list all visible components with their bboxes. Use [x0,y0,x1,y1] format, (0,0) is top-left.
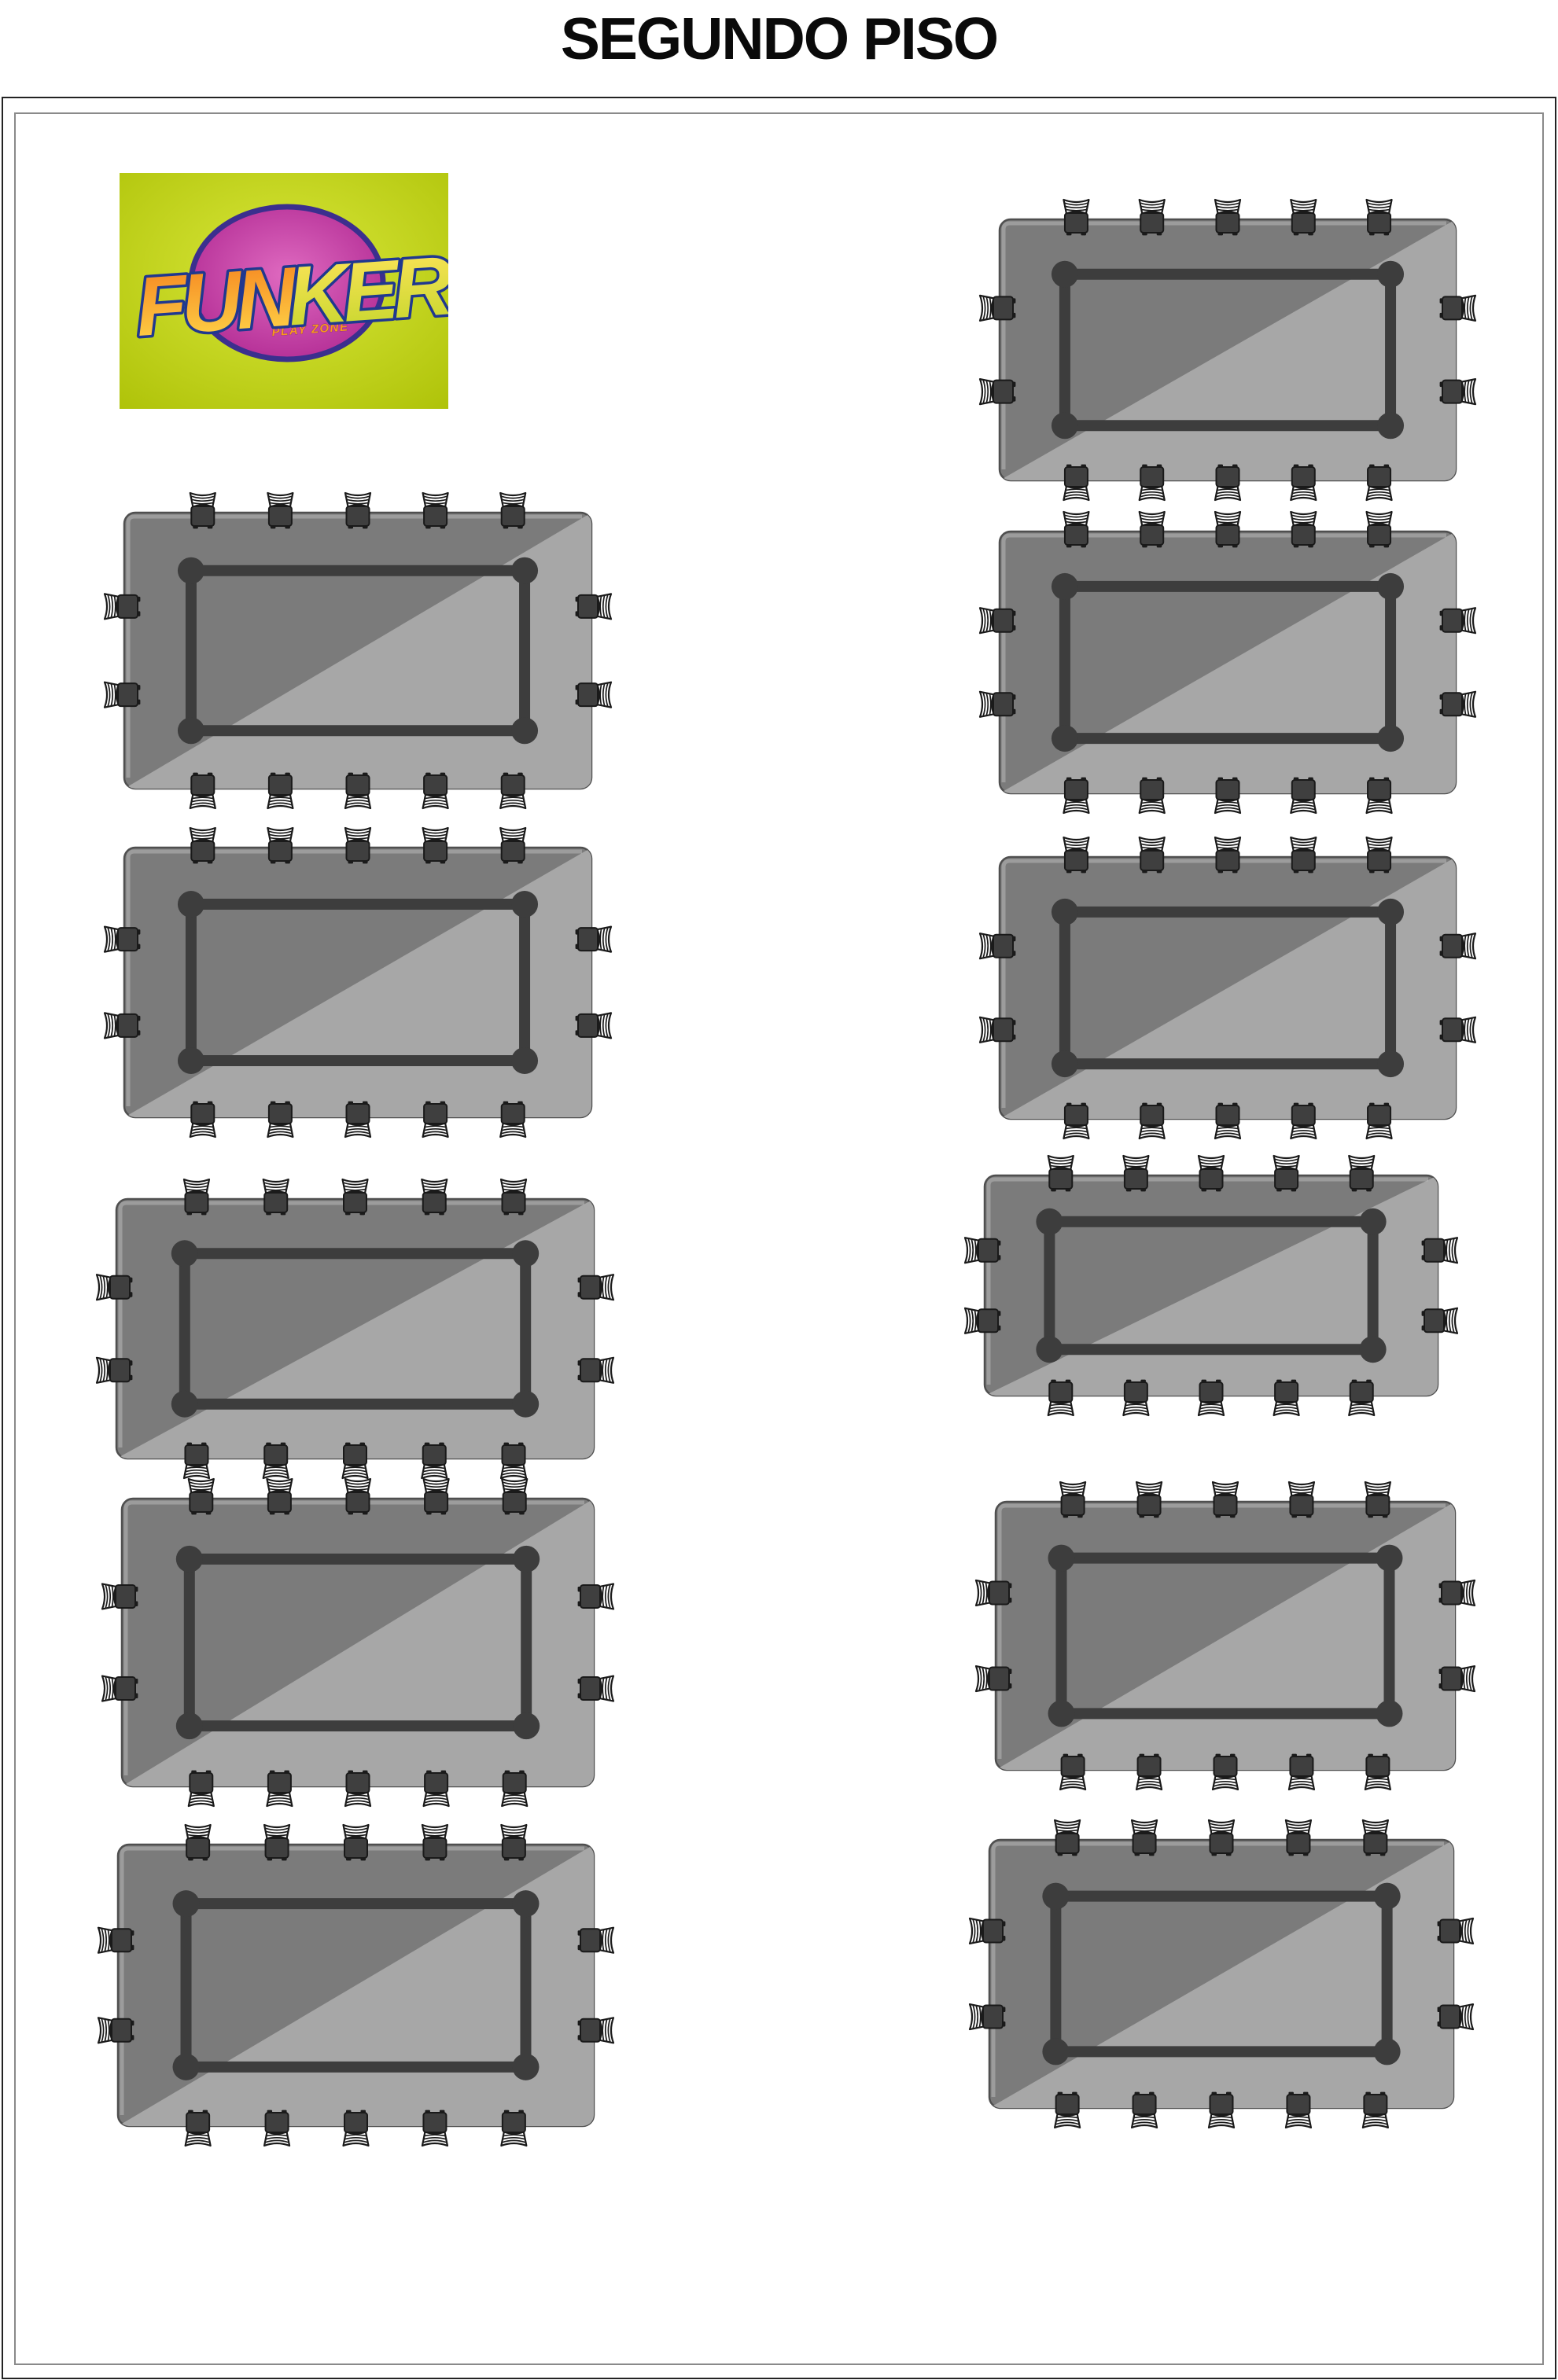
chair-foot [578,1587,581,1592]
chair-foot [134,1587,138,1592]
chair-foot [348,1511,354,1514]
chair-foot [129,1278,132,1283]
frame-corner [1052,573,1078,600]
chair-seat [1350,1169,1373,1189]
chair-foot [1226,2092,1232,2095]
chair-foot [504,1443,510,1446]
chair [501,1825,526,1860]
chair-seat [344,2113,367,2132]
chair [1286,2092,1311,2128]
chair-foot [441,1511,447,1514]
chair-foot [134,1679,138,1684]
chair-foot [519,1771,525,1774]
funker-logo: PLAY ZONE FUN KER [120,173,448,409]
chair-seat [186,1838,209,1858]
chair-foot [271,1102,276,1105]
chair-seat [1140,780,1163,800]
chair-seat [1138,1756,1161,1776]
chair-foot [1306,1754,1312,1757]
chair-foot [504,1857,510,1860]
chair [1123,1156,1148,1191]
chair [980,608,1015,633]
chair-foot [137,597,140,602]
chair [1363,1820,1388,1856]
chair [1213,1482,1238,1517]
chair-foot [363,1771,368,1774]
chair-foot [1365,2092,1371,2095]
chair [1440,379,1475,404]
chair-seat [1364,1834,1387,1853]
chair-foot [578,1930,581,1936]
chair-seat [578,928,598,951]
chair [578,1275,613,1300]
chair-seat [1442,1668,1461,1690]
chair-foot [137,944,140,950]
chair-foot [1218,544,1224,547]
chair [1286,1820,1311,1856]
chair-foot [439,1212,444,1215]
frame-corner [1360,1208,1387,1235]
chair-foot [1384,870,1390,873]
frame-corner [1052,899,1078,925]
frame-corner [512,2054,539,2080]
frame-corner [171,1240,198,1267]
chair-seat [1292,467,1315,487]
chair [1215,837,1240,873]
chair-foot [186,1443,192,1446]
chair [424,1479,449,1514]
chair-foot [206,1771,212,1774]
chair-seat [190,1773,212,1793]
chair-foot [271,773,276,776]
chair [1063,837,1088,873]
chair-foot [997,1241,1000,1246]
chair-foot [1303,1852,1309,1856]
chair [190,1102,215,1137]
chair-seat [503,1445,525,1465]
chair [1439,1666,1475,1691]
chair-seat [1140,213,1163,233]
chair-seat [1275,1169,1298,1189]
chair-foot [578,1360,581,1366]
chair-foot [1230,1514,1236,1517]
banquet-table [91,1818,621,2153]
chair [105,594,140,619]
chair-foot [1439,1583,1442,1588]
chair-foot [1439,1669,1442,1675]
chair [1438,2004,1473,2029]
chair-foot [266,1212,271,1215]
chair-seat [191,1104,214,1124]
chair [424,1771,449,1806]
chair-seat [347,1104,370,1124]
chair-foot [1002,2007,1005,2013]
chair-foot [576,1030,579,1036]
chair-foot [1142,1103,1147,1106]
chair-foot [1012,625,1015,631]
chair-seat [993,296,1013,319]
chair-foot [1226,1852,1232,1856]
chair-foot [1012,936,1015,942]
chair-foot [425,1443,430,1446]
chair [1367,778,1392,813]
chair [345,493,370,528]
chair [578,1676,613,1701]
chair-foot [346,1857,352,1860]
chair-foot [1142,870,1147,873]
chair-foot [440,1102,446,1105]
chair-foot [208,525,213,528]
chair-seat [1065,467,1088,487]
chair [267,828,293,863]
chair-seat [269,506,292,526]
chair [344,2110,369,2146]
chair-foot [1008,1683,1011,1689]
chair-foot [1438,1921,1441,1926]
chair-foot [1365,1852,1371,1856]
chair-foot [1012,298,1015,303]
chair-foot [134,1694,138,1699]
chair [1063,512,1088,547]
chair-foot [425,525,431,528]
chair-foot [1051,1188,1056,1191]
chair-seat [580,2019,600,2042]
chair-foot [578,1601,581,1606]
chair [1365,1754,1390,1790]
chair-foot [131,2021,134,2026]
chair-seat [578,683,598,706]
chair-foot [208,860,213,863]
chair-foot [1218,778,1224,781]
frame-corner [512,1890,539,1917]
chair-seat [112,1929,131,1951]
chair-foot [1218,1103,1224,1106]
frame-corner [1052,261,1078,288]
chair-foot [1369,870,1375,873]
chair-foot [1212,2092,1217,2095]
frame-corner [513,1712,540,1739]
chair-foot [1140,1188,1146,1191]
chair [97,1358,132,1383]
chair-seat [580,1585,600,1608]
chair-foot [1440,936,1443,942]
chair [1289,1754,1314,1790]
chair-foot [518,1857,524,1860]
chair-foot [1002,2021,1005,2027]
chair [423,773,448,808]
chair-foot [1081,465,1086,468]
chair [105,682,140,708]
chair-seat [983,2006,1003,2029]
chair [264,2110,289,2146]
chair-foot [129,1292,132,1297]
chair-seat [578,595,598,618]
chair-foot [1135,2092,1140,2095]
chair-foot [1440,382,1443,388]
chair [1215,1103,1240,1139]
chair-foot [1294,544,1299,547]
chair-seat [1200,1382,1223,1402]
chair-foot [1232,544,1238,547]
chair-seat [269,1104,292,1124]
chair-seat [264,1445,287,1465]
logo-brand-fun: FUN [133,250,301,354]
chair-seat [425,1773,448,1793]
chair-foot [345,1443,351,1446]
chair-foot [503,1102,509,1105]
chair-foot [201,1212,207,1215]
chair-foot [425,1102,431,1105]
chair [267,1479,292,1514]
chair-seat [191,775,214,795]
chair-foot [517,1102,523,1105]
chair-seat [1368,851,1390,870]
chair-foot [1384,778,1390,781]
chair [1199,1380,1224,1415]
chair-foot [518,1212,524,1215]
chair [576,1013,611,1038]
chair [501,2110,526,2146]
chair-seat [424,1104,447,1124]
chair [1060,1482,1085,1517]
chair-foot [1308,544,1313,547]
chair-seat [1049,1382,1072,1402]
chair-foot [1012,709,1015,715]
chair-foot [1008,1583,1011,1588]
chair [1367,837,1392,873]
chair-foot [1383,1514,1388,1517]
chair-seat [1217,1105,1239,1125]
chair-foot [348,860,354,863]
chair-foot [131,2035,134,2040]
chair-seat [1065,525,1088,545]
chair [422,1825,448,1860]
chair-foot [1154,1514,1159,1517]
chair [1063,465,1088,500]
chair-seat [186,2113,209,2132]
chair-foot [1369,544,1375,547]
chair [1213,1754,1238,1790]
frame-corner [1377,899,1404,925]
chair-foot [1369,1103,1375,1106]
chair-seat [1364,2095,1387,2114]
chair-foot [425,1857,430,1860]
chair [1199,1156,1224,1191]
chair-foot [285,525,290,528]
chair-foot [1439,1598,1442,1603]
chair-foot [1422,1326,1425,1331]
chair-foot [1422,1255,1425,1260]
chair-seat [989,1581,1009,1604]
chair-seat [1292,780,1315,800]
chair-foot [137,611,140,616]
chair-foot [137,929,140,935]
chair [105,927,140,952]
chair-foot [1369,465,1375,468]
chair [1363,2092,1388,2128]
chair-seat [502,506,525,526]
chair-seat [118,928,138,951]
chair-foot [1308,778,1313,781]
chair-foot [997,1311,1000,1316]
frame-corner [1052,725,1078,752]
chair [578,1928,613,1953]
chair-seat [502,1104,525,1124]
chair [189,1479,214,1514]
chair-seat [268,1773,291,1793]
chair-seat [1200,1169,1223,1189]
chair-seat [993,935,1013,958]
chair-foot [346,2110,352,2113]
chair [267,1771,292,1806]
chair-foot [503,773,509,776]
chair [578,1584,613,1609]
chair-foot [1294,870,1299,873]
frame-corner [1374,2038,1401,2065]
chair-foot [1072,2092,1077,2095]
chair-seat [1062,1495,1085,1515]
chair-seat [269,775,292,795]
chair-foot [1140,1754,1145,1757]
chair-seat [1056,2095,1079,2114]
frame-corner [1377,725,1404,752]
chair [578,1358,613,1383]
chair-foot [576,597,579,602]
chair-seat [1292,213,1315,233]
chair [345,828,370,863]
chair-foot [1276,1188,1282,1191]
chair-foot [1276,1380,1282,1383]
chair-foot [137,1016,140,1021]
chair-foot [1140,1514,1145,1517]
chair-foot [1294,465,1299,468]
chair-foot [1308,1103,1313,1106]
chair [1215,200,1240,235]
chair-foot [1012,382,1015,388]
chair-foot [517,525,523,528]
frame-corner [1376,1700,1402,1727]
chair [500,828,525,863]
chair-foot [361,1857,366,1860]
chair-foot [1066,544,1072,547]
chair-foot [363,525,368,528]
chair-foot [1012,951,1015,956]
chair [1440,692,1475,717]
chair [965,1238,1000,1263]
chair [1274,1156,1299,1191]
chair [1209,2092,1234,2128]
chair-seat [347,841,370,861]
chair-foot [440,2110,445,2113]
chair-foot [1232,778,1238,781]
chair-foot [1440,625,1443,631]
chair-foot [1294,232,1299,235]
chair [1440,296,1475,321]
chair-seat [1217,525,1239,545]
chair-foot [284,1771,289,1774]
chair [576,927,611,952]
chair-seat [1217,780,1239,800]
banquet-table [973,830,1482,1146]
chair-seat [978,1239,998,1262]
chair-foot [578,2035,581,2040]
chair-foot [201,1443,207,1446]
chair [1048,1156,1074,1191]
chair-seat [993,381,1013,403]
frame-corner [178,557,204,584]
chair-seat [424,506,447,526]
chair [501,1179,526,1215]
chair-foot [1380,1852,1386,1856]
chair [1132,1820,1157,1856]
chair-foot [1012,1020,1015,1025]
chair-seat [1368,1105,1390,1125]
chair [1063,200,1088,235]
chair-foot [1422,1311,1425,1316]
chair-foot [1063,1514,1069,1517]
frame-corner [178,891,204,918]
chair [1055,1820,1080,1856]
chair-foot [1366,1380,1372,1383]
chair-foot [578,1375,581,1381]
chair [267,493,293,528]
chair [1215,465,1240,500]
frame-corner [178,717,204,744]
chair-foot [1157,232,1162,235]
chair-foot [1157,870,1162,873]
chair-seat [347,1492,370,1512]
chair-seat [1442,935,1462,958]
chair-foot [1135,1852,1140,1856]
chair [422,2110,448,2146]
chair-foot [285,860,290,863]
chair-foot [1066,1188,1071,1191]
chair-seat [1214,1756,1237,1776]
banquet-table [958,1149,1464,1422]
chair-foot [271,860,276,863]
chair [186,2110,211,2146]
chair-foot [576,685,579,690]
chair-foot [578,1679,581,1684]
chair-foot [348,525,354,528]
chair-seat [1056,1834,1079,1853]
chair-foot [270,1511,275,1514]
chair [423,828,448,863]
chair [1291,465,1316,500]
chair-foot [282,1857,287,1860]
frame-corner [1052,412,1078,439]
chair [263,1179,289,1215]
chair [976,1666,1011,1691]
chair-seat [347,775,370,795]
chair [1349,1380,1374,1415]
chair-foot [348,1771,354,1774]
chair-foot [1066,1103,1072,1106]
chair-seat [110,1276,130,1299]
chair-seat [502,841,525,861]
chair-foot [208,1102,213,1105]
chair [1438,1918,1473,1944]
chair-foot [517,860,523,863]
chair [1440,608,1475,633]
chair-foot [348,1102,354,1105]
chair-foot [1438,2021,1441,2027]
chair [1367,512,1392,547]
chair-foot [266,1443,271,1446]
chair-foot [1352,1380,1357,1383]
chair-foot [1066,778,1072,781]
chair-foot [281,1212,286,1215]
